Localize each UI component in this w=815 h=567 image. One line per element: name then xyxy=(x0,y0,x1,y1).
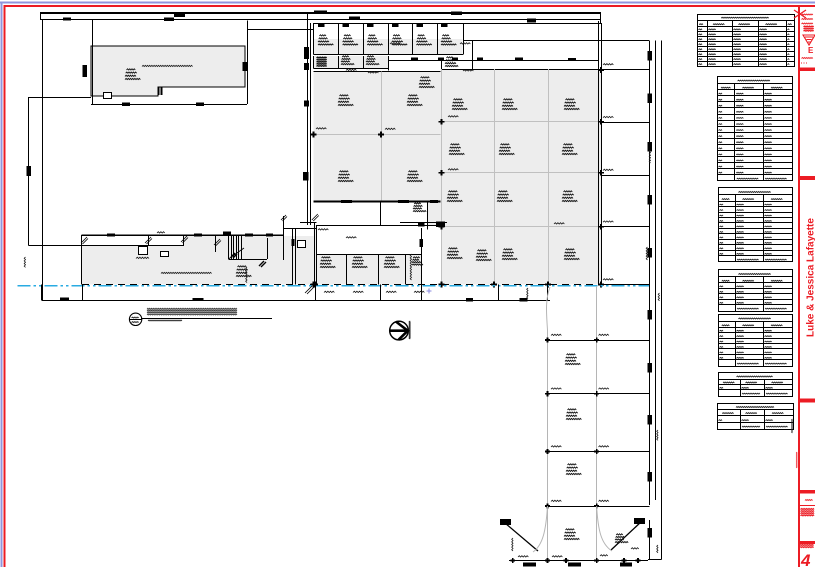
svg-text:E: E xyxy=(808,46,814,55)
svg-text:4: 4 xyxy=(800,551,811,567)
svg-text:Luke & Jessica Lafayette: Luke & Jessica Lafayette xyxy=(806,218,815,337)
